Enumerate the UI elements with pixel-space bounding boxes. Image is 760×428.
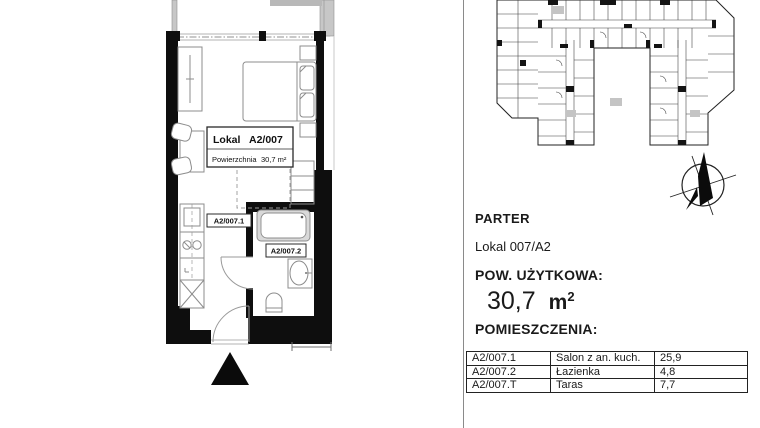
desk xyxy=(291,161,314,204)
area-number: 30,7 xyxy=(487,287,536,315)
unit-area-value: 30,7 m² xyxy=(261,155,287,164)
bathtub xyxy=(257,210,310,241)
unit-number-label: Lokal 007/A2 xyxy=(475,239,551,254)
room-id-cell: A2/007.1 xyxy=(467,352,551,366)
unit-floorplan: Lokal A2/007 Powierzchnia 30,7 m² xyxy=(166,0,334,385)
room-area-cell: 7,7 xyxy=(655,379,748,393)
table-row: A2/007.2 Łazienka 4,8 xyxy=(467,365,748,379)
info-panel: PARTER Lokal 007/A2 POW. UŻYTKOWA: 30,7m… xyxy=(463,0,760,428)
neighbor-terrace-wall xyxy=(324,0,334,36)
bathtub-drain xyxy=(301,216,304,219)
floor-label: PARTER xyxy=(475,211,530,226)
floorplan-sheet: Lokal A2/007 Powierzchnia 30,7 m² xyxy=(0,0,760,428)
room-tag-living: A2/007.1 xyxy=(207,214,251,227)
room-area-cell: 25,9 xyxy=(655,352,748,366)
nightstand xyxy=(300,46,316,60)
wall-right-upper xyxy=(316,32,324,172)
usable-area-value: 30,7m2 xyxy=(487,287,575,316)
room-id-cell: A2/007.2 xyxy=(467,365,551,379)
room-name-cell: Taras xyxy=(551,379,655,393)
rooms-table: A2/007.1 Salon z an. kuch. 25,9 A2/007.2… xyxy=(466,351,748,393)
rooms-heading: POMIESZCZENIA: xyxy=(475,321,598,337)
kitchen-annex xyxy=(180,204,204,308)
room-tag-bathroom: A2/007.2 xyxy=(266,244,306,257)
unit-label-number: A2/007 xyxy=(249,134,283,146)
wardrobe xyxy=(178,47,202,111)
unit-area-label: Powierzchnia xyxy=(212,155,257,164)
bathroom: A2/007.2 xyxy=(257,210,312,312)
unit-label-box: Lokal A2/007 Powierzchnia 30,7 m² xyxy=(207,127,293,167)
room-name-cell: Łazienka xyxy=(551,365,655,379)
nightstand xyxy=(300,123,316,137)
svg-text:A2/007.2: A2/007.2 xyxy=(271,247,301,256)
terrace-wall-left xyxy=(172,0,177,36)
svg-text:A2/007.1: A2/007.1 xyxy=(214,217,244,226)
table-row: A2/007.1 Salon z an. kuch. 25,9 xyxy=(467,352,748,366)
area-unit: m2 xyxy=(549,291,575,314)
room-area-cell: 4,8 xyxy=(655,365,748,379)
wall-bathroom-bottom xyxy=(248,316,332,344)
bathroom-door-swing xyxy=(221,257,253,289)
wall-bathroom-left-upper xyxy=(246,202,253,257)
washbasin xyxy=(288,259,312,288)
wall-bottom-left xyxy=(166,330,211,344)
terrace-planter xyxy=(270,0,322,6)
table-row: A2/007.T Taras 7,7 xyxy=(467,379,748,393)
usable-area-heading: POW. UŻYTKOWA: xyxy=(475,267,603,283)
entrance-triangle-icon xyxy=(211,352,249,385)
room-id-cell: A2/007.T xyxy=(467,379,551,393)
ceiling-dashed-outline xyxy=(237,166,290,208)
bed xyxy=(243,62,316,121)
unit-label-title: Lokal xyxy=(213,134,241,146)
entrance-door-swing xyxy=(211,306,249,344)
room-name-cell: Salon z an. kuch. xyxy=(551,352,655,366)
window-wall xyxy=(166,31,326,41)
toilet xyxy=(266,293,282,312)
